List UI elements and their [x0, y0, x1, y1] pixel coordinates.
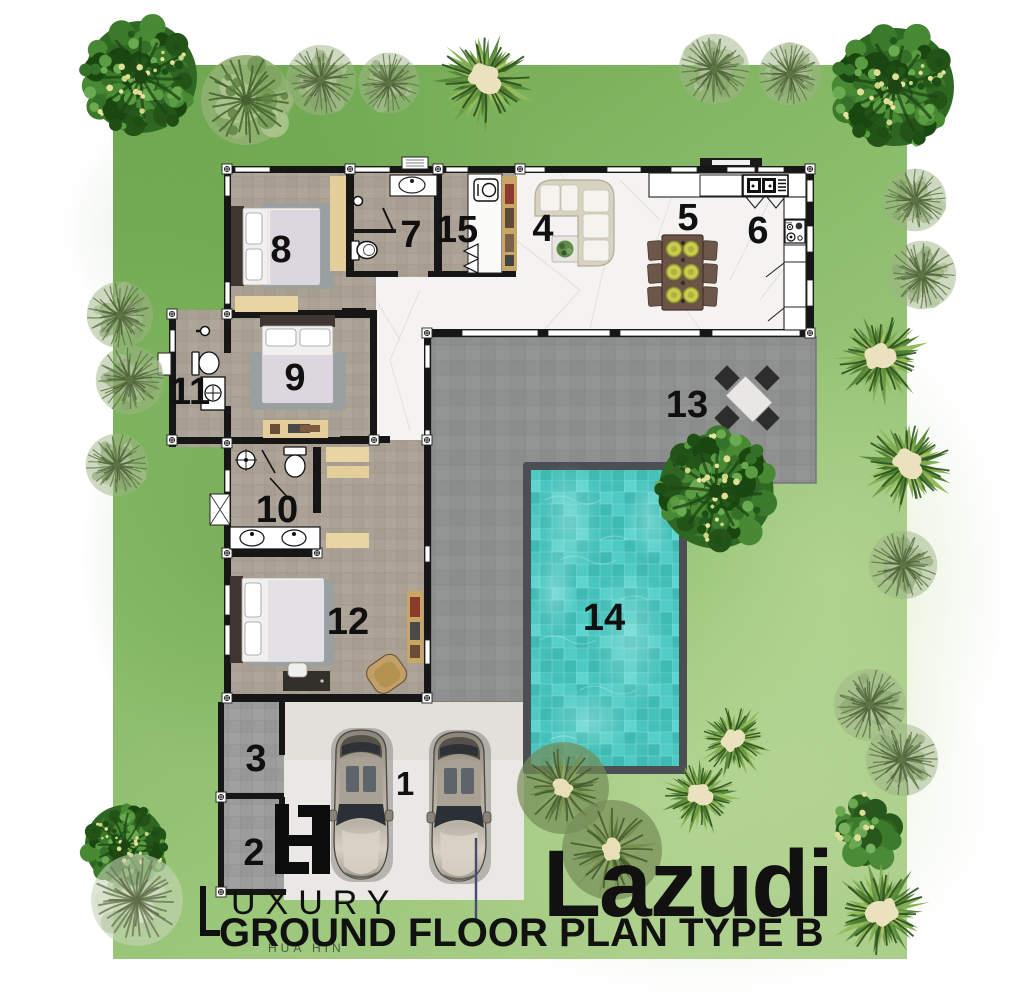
svg-text:1: 1: [396, 765, 414, 802]
svg-text:3: 3: [245, 738, 266, 780]
svg-text:15: 15: [436, 209, 478, 251]
svg-text:7: 7: [400, 214, 421, 256]
svg-text:2: 2: [243, 832, 264, 874]
svg-text:13: 13: [666, 384, 708, 426]
svg-text:8: 8: [270, 229, 291, 271]
svg-text:9: 9: [284, 357, 305, 399]
svg-text:6: 6: [747, 210, 768, 252]
svg-text:10: 10: [256, 489, 298, 531]
svg-text:4: 4: [532, 208, 553, 250]
svg-text:12: 12: [327, 601, 369, 643]
svg-text:GROUND FLOOR PLAN TYPE B: GROUND FLOOR PLAN TYPE B: [219, 911, 823, 955]
svg-text:14: 14: [583, 597, 625, 639]
svg-text:11: 11: [170, 371, 210, 413]
svg-text:5: 5: [677, 197, 698, 239]
